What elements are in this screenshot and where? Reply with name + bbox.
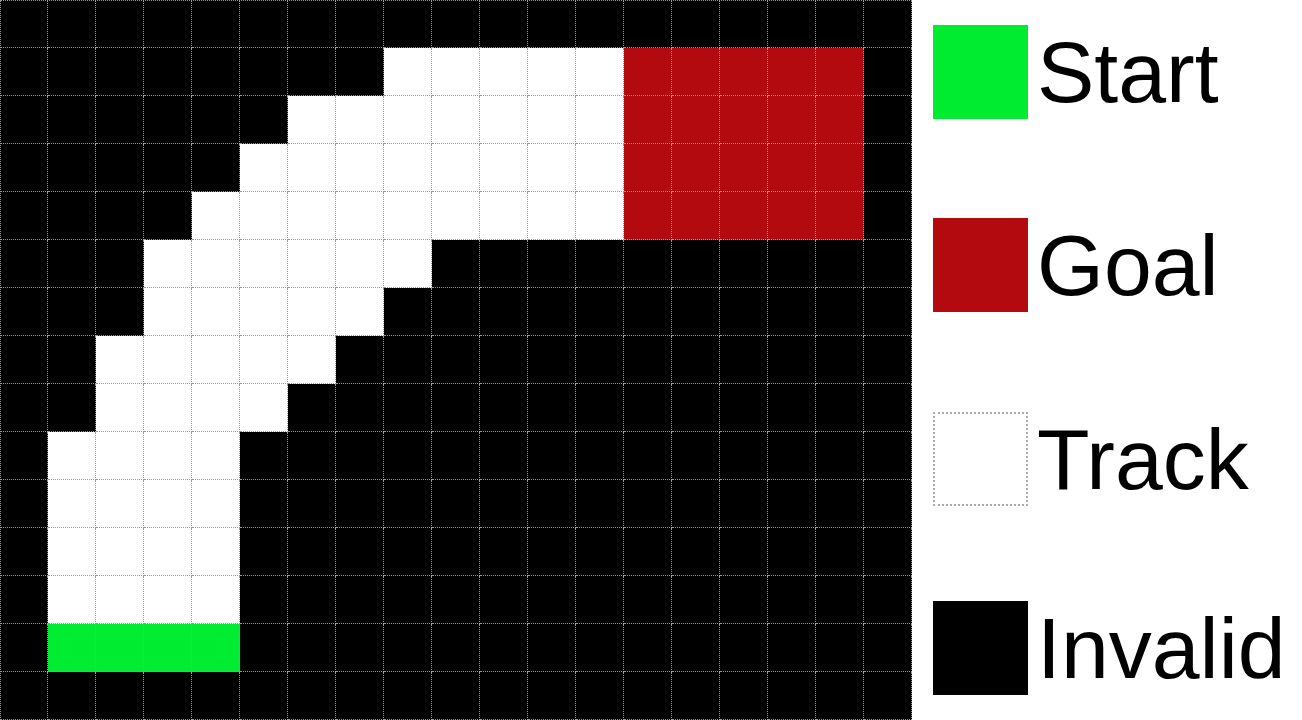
grid-cell-invalid: [192, 96, 240, 144]
grid-cell-invalid: [768, 432, 816, 480]
grid-cell-invalid: [624, 336, 672, 384]
grid-cell-track: [336, 96, 384, 144]
grid-cell-track: [384, 240, 432, 288]
grid-cell-goal: [720, 48, 768, 96]
grid-cell-track: [240, 288, 288, 336]
grid-cell-invalid: [864, 480, 912, 528]
grid-cell-invalid: [720, 336, 768, 384]
grid-cell-invalid: [336, 432, 384, 480]
grid-cell-track: [480, 48, 528, 96]
grid-cell-invalid: [576, 336, 624, 384]
grid-cell-invalid: [528, 432, 576, 480]
grid-cell-invalid: [0, 96, 48, 144]
grid-cell-invalid: [768, 0, 816, 48]
grid-cell-track: [144, 384, 192, 432]
grid-cell-invalid: [576, 624, 624, 672]
grid-cell-invalid: [240, 0, 288, 48]
grid-cell-invalid: [0, 240, 48, 288]
grid-cell-invalid: [0, 576, 48, 624]
grid-cell-invalid: [624, 576, 672, 624]
grid-cell-invalid: [624, 480, 672, 528]
grid-cell-invalid: [672, 288, 720, 336]
grid-cell-track: [192, 240, 240, 288]
grid-cell-track: [288, 336, 336, 384]
grid-cell-track: [96, 528, 144, 576]
grid-cell-invalid: [432, 576, 480, 624]
grid-cell-invalid: [864, 624, 912, 672]
grid-cell-track: [576, 144, 624, 192]
grid-cell-invalid: [384, 672, 432, 720]
grid-cell-invalid: [384, 384, 432, 432]
grid-cell-invalid: [336, 0, 384, 48]
grid-cell-track: [432, 144, 480, 192]
grid-cell-track: [432, 192, 480, 240]
grid-cell-invalid: [96, 240, 144, 288]
grid-cell-invalid: [768, 624, 816, 672]
grid-cell-invalid: [528, 528, 576, 576]
grid-cell-track: [336, 144, 384, 192]
grid-cell-invalid: [384, 336, 432, 384]
grid-cell-track: [576, 192, 624, 240]
grid-cell-invalid: [768, 288, 816, 336]
grid-cell-invalid: [576, 288, 624, 336]
grid-cell-invalid: [624, 672, 672, 720]
grid-cell-invalid: [576, 0, 624, 48]
grid-cell-invalid: [144, 192, 192, 240]
grid-cell-invalid: [432, 240, 480, 288]
grid-cell-invalid: [96, 288, 144, 336]
grid-cell-track: [192, 432, 240, 480]
grid-cell-invalid: [816, 0, 864, 48]
grid-cell-invalid: [864, 288, 912, 336]
grid-cell-invalid: [720, 288, 768, 336]
grid-cell-goal: [768, 192, 816, 240]
racetrack-grid: [0, 0, 912, 720]
grid-cell-invalid: [240, 528, 288, 576]
grid-cell-invalid: [672, 480, 720, 528]
grid-cell-invalid: [288, 624, 336, 672]
grid-cell-invalid: [144, 144, 192, 192]
grid-cell-invalid: [624, 0, 672, 48]
grid-cell-invalid: [864, 192, 912, 240]
grid-cell-invalid: [48, 0, 96, 48]
grid-cell-invalid: [672, 528, 720, 576]
grid-cell-track: [144, 528, 192, 576]
grid-cell-invalid: [768, 576, 816, 624]
grid-cell-invalid: [288, 384, 336, 432]
grid-cell-track: [336, 240, 384, 288]
grid-cell-track: [336, 288, 384, 336]
grid-cell-invalid: [768, 336, 816, 384]
grid-cell-invalid: [384, 528, 432, 576]
grid-cell-invalid: [480, 336, 528, 384]
grid-cell-track: [96, 384, 144, 432]
grid-cell-invalid: [0, 672, 48, 720]
grid-cell-invalid: [336, 576, 384, 624]
grid-cell-track: [432, 96, 480, 144]
grid-cell-goal: [768, 96, 816, 144]
grid-cell-invalid: [816, 432, 864, 480]
grid-cell-invalid: [240, 672, 288, 720]
grid-cell-invalid: [336, 624, 384, 672]
grid-cell-invalid: [720, 0, 768, 48]
grid-cell-invalid: [576, 384, 624, 432]
grid-cell-invalid: [384, 576, 432, 624]
grid-cell-track: [288, 240, 336, 288]
grid-cell-invalid: [0, 288, 48, 336]
grid-cell-track: [384, 96, 432, 144]
grid-cell-invalid: [384, 288, 432, 336]
grid-cell-track: [96, 432, 144, 480]
grid-cell-invalid: [864, 48, 912, 96]
grid-cell-invalid: [816, 528, 864, 576]
grid-cell-invalid: [0, 384, 48, 432]
grid-cell-goal: [624, 96, 672, 144]
grid-cell-invalid: [96, 96, 144, 144]
grid-cell-invalid: [672, 576, 720, 624]
grid-cell-invalid: [48, 336, 96, 384]
grid-cell-invalid: [288, 0, 336, 48]
grid-cell-track: [48, 432, 96, 480]
grid-cell-goal: [768, 144, 816, 192]
grid-cell-track: [528, 144, 576, 192]
grid-cell-track: [96, 336, 144, 384]
grid-cell-invalid: [144, 0, 192, 48]
grid-cell-invalid: [720, 528, 768, 576]
grid-cell-invalid: [816, 336, 864, 384]
grid-cell-track: [288, 288, 336, 336]
grid-cell-track: [288, 96, 336, 144]
grid-cell-invalid: [672, 0, 720, 48]
grid-cell-invalid: [864, 576, 912, 624]
grid-cell-invalid: [720, 672, 768, 720]
grid-cell-invalid: [480, 624, 528, 672]
grid-cell-goal: [624, 48, 672, 96]
grid-cell-invalid: [816, 672, 864, 720]
grid-cell-invalid: [288, 48, 336, 96]
grid-cell-invalid: [480, 672, 528, 720]
grid-cell-invalid: [816, 240, 864, 288]
grid-cell-invalid: [768, 384, 816, 432]
grid-cell-invalid: [432, 384, 480, 432]
grid-cell-invalid: [0, 624, 48, 672]
grid-cell-invalid: [240, 624, 288, 672]
grid-cell-invalid: [336, 672, 384, 720]
grid-cell-invalid: [384, 0, 432, 48]
grid-cell-invalid: [624, 432, 672, 480]
grid-cell-invalid: [0, 192, 48, 240]
legend-item-invalid: Invalid: [933, 601, 1286, 695]
grid-cell-goal: [672, 48, 720, 96]
grid-cell-invalid: [432, 432, 480, 480]
grid-cell-invalid: [240, 96, 288, 144]
grid-cell-invalid: [720, 480, 768, 528]
grid-cell-track: [576, 48, 624, 96]
grid-cell-track: [192, 480, 240, 528]
grid-cell-invalid: [96, 144, 144, 192]
grid-cell-invalid: [48, 144, 96, 192]
track-swatch: [933, 412, 1028, 506]
grid-cell-invalid: [288, 432, 336, 480]
grid-cell-invalid: [48, 288, 96, 336]
grid-cell-invalid: [720, 240, 768, 288]
grid-cell-track: [144, 480, 192, 528]
grid-cell-invalid: [528, 672, 576, 720]
grid-cell-invalid: [720, 384, 768, 432]
grid-cell-invalid: [0, 144, 48, 192]
grid-cell-start: [48, 624, 96, 672]
grid-cell-invalid: [432, 0, 480, 48]
grid-cell-track: [288, 144, 336, 192]
grid-cell-invalid: [480, 576, 528, 624]
grid-cell-invalid: [288, 528, 336, 576]
grid-cell-invalid: [192, 144, 240, 192]
grid-cell-invalid: [816, 576, 864, 624]
grid-cell-invalid: [192, 0, 240, 48]
grid-cell-track: [144, 240, 192, 288]
grid-cell-invalid: [864, 144, 912, 192]
grid-cell-invalid: [336, 336, 384, 384]
grid-cell-invalid: [864, 384, 912, 432]
grid-cell-invalid: [672, 336, 720, 384]
grid-cell-invalid: [768, 672, 816, 720]
grid-cell-track: [480, 96, 528, 144]
grid-cell-start: [144, 624, 192, 672]
grid-cell-invalid: [528, 384, 576, 432]
grid-cell-invalid: [480, 528, 528, 576]
grid-cell-invalid: [528, 0, 576, 48]
grid-cell-track: [432, 48, 480, 96]
grid-cell-invalid: [0, 0, 48, 48]
grid-cell-track: [288, 192, 336, 240]
grid-cell-invalid: [48, 384, 96, 432]
grid-cell-invalid: [288, 576, 336, 624]
legend: Start Goal Track Invalid: [912, 0, 1302, 720]
grid-cell-invalid: [0, 48, 48, 96]
grid-cell-track: [144, 576, 192, 624]
grid-cell-invalid: [864, 96, 912, 144]
grid-cell-invalid: [864, 672, 912, 720]
grid-cell-invalid: [48, 48, 96, 96]
grid-cell-invalid: [384, 624, 432, 672]
grid-cell-goal: [624, 144, 672, 192]
grid-cell-track: [96, 576, 144, 624]
grid-cell-track: [576, 96, 624, 144]
grid-cell-invalid: [864, 336, 912, 384]
grid-cell-track: [336, 192, 384, 240]
grid-cell-invalid: [816, 624, 864, 672]
grid-cell-track: [384, 192, 432, 240]
grid-cell-invalid: [528, 624, 576, 672]
grid-cell-invalid: [768, 528, 816, 576]
grid-cell-invalid: [432, 336, 480, 384]
grid-cell-goal: [672, 192, 720, 240]
grid-cell-invalid: [576, 576, 624, 624]
grid-cell-track: [144, 336, 192, 384]
grid-cell-invalid: [672, 432, 720, 480]
grid-cell-track: [240, 192, 288, 240]
grid-cell-track: [192, 576, 240, 624]
grid-cell-invalid: [240, 432, 288, 480]
grid-cell-track: [240, 240, 288, 288]
grid-cell-invalid: [144, 672, 192, 720]
grid-cell-track: [240, 384, 288, 432]
grid-cell-invalid: [0, 336, 48, 384]
grid-cell-invalid: [624, 384, 672, 432]
grid-cell-invalid: [864, 432, 912, 480]
grid-cell-invalid: [240, 48, 288, 96]
grid-cell-invalid: [816, 384, 864, 432]
grid-cell-invalid: [528, 240, 576, 288]
grid-cell-invalid: [480, 240, 528, 288]
start-swatch: [933, 25, 1028, 119]
grid-cell-invalid: [480, 0, 528, 48]
grid-cell-invalid: [432, 480, 480, 528]
grid-cell-goal: [816, 192, 864, 240]
grid-cell-invalid: [240, 480, 288, 528]
grid-cell-invalid: [816, 480, 864, 528]
grid-cell-invalid: [0, 528, 48, 576]
grid-cell-track: [192, 384, 240, 432]
grid-cell-track: [192, 528, 240, 576]
grid-cell-invalid: [528, 288, 576, 336]
grid-cell-invalid: [528, 480, 576, 528]
grid-cell-invalid: [48, 96, 96, 144]
grid-cell-invalid: [576, 240, 624, 288]
grid-cell-invalid: [816, 288, 864, 336]
legend-label-start: Start: [1037, 25, 1219, 119]
grid-cell-track: [384, 48, 432, 96]
grid-cell-track: [240, 336, 288, 384]
grid-cell-invalid: [480, 432, 528, 480]
grid-cell-track: [192, 288, 240, 336]
grid-cell-invalid: [144, 48, 192, 96]
grid-cell-track: [528, 48, 576, 96]
grid-cell-invalid: [672, 672, 720, 720]
grid-cell-invalid: [96, 672, 144, 720]
grid-cell-invalid: [96, 192, 144, 240]
grid-cell-track: [48, 528, 96, 576]
grid-cell-invalid: [144, 96, 192, 144]
grid-cell-track: [144, 432, 192, 480]
grid-cell-track: [96, 480, 144, 528]
grid-cell-invalid: [720, 432, 768, 480]
legend-item-track: Track: [933, 412, 1249, 506]
grid-cell-invalid: [96, 48, 144, 96]
grid-cell-track: [528, 96, 576, 144]
grid-cell-invalid: [48, 672, 96, 720]
invalid-swatch: [933, 601, 1028, 695]
grid-cell-invalid: [432, 528, 480, 576]
grid-cell-invalid: [576, 432, 624, 480]
legend-item-goal: Goal: [933, 218, 1219, 312]
grid-cell-track: [528, 192, 576, 240]
grid-cell-invalid: [432, 288, 480, 336]
grid-cell-invalid: [336, 480, 384, 528]
grid-cell-track: [480, 144, 528, 192]
grid-cell-invalid: [240, 576, 288, 624]
grid-cell-invalid: [0, 432, 48, 480]
grid-cell-track: [192, 192, 240, 240]
grid-cell-goal: [816, 48, 864, 96]
grid-cell-invalid: [48, 192, 96, 240]
grid-cell-invalid: [624, 528, 672, 576]
grid-cell-invalid: [432, 624, 480, 672]
grid-cell-invalid: [576, 672, 624, 720]
grid-cell-invalid: [192, 48, 240, 96]
grid-cell-invalid: [336, 528, 384, 576]
grid-cell-invalid: [288, 480, 336, 528]
grid-cell-invalid: [720, 576, 768, 624]
grid-cell-invalid: [480, 384, 528, 432]
grid-cell-invalid: [864, 240, 912, 288]
grid-cell-track: [48, 480, 96, 528]
grid-cell-invalid: [336, 48, 384, 96]
grid-cell-track: [480, 192, 528, 240]
legend-item-start: Start: [933, 25, 1219, 119]
grid-cell-invalid: [480, 288, 528, 336]
grid-cell-goal: [816, 144, 864, 192]
grid-cell-track: [48, 576, 96, 624]
goal-swatch: [933, 218, 1028, 312]
grid-cell-start: [96, 624, 144, 672]
grid-cell-goal: [672, 144, 720, 192]
grid-cell-invalid: [384, 432, 432, 480]
grid-cell-invalid: [528, 336, 576, 384]
legend-label-track: Track: [1037, 412, 1249, 506]
grid-cell-invalid: [192, 672, 240, 720]
grid-cell-invalid: [624, 288, 672, 336]
grid-cell-invalid: [480, 480, 528, 528]
grid-cell-invalid: [768, 480, 816, 528]
grid-cell-goal: [624, 192, 672, 240]
grid-cell-invalid: [672, 240, 720, 288]
grid-cell-invalid: [576, 528, 624, 576]
grid-cell-goal: [768, 48, 816, 96]
grid-cell-start: [192, 624, 240, 672]
grid-cell-invalid: [672, 384, 720, 432]
grid-cell-invalid: [864, 528, 912, 576]
grid-cell-invalid: [720, 624, 768, 672]
grid-cell-goal: [720, 144, 768, 192]
grid-cell-goal: [720, 192, 768, 240]
grid-cell-invalid: [672, 624, 720, 672]
grid-cell-invalid: [288, 672, 336, 720]
grid-cell-invalid: [624, 240, 672, 288]
grid-cell-invalid: [48, 240, 96, 288]
grid-cell-invalid: [864, 0, 912, 48]
grid-cell-goal: [816, 96, 864, 144]
grid-cell-invalid: [0, 480, 48, 528]
grid-cell-goal: [720, 96, 768, 144]
grid-cell-invalid: [384, 480, 432, 528]
grid-cell-invalid: [528, 576, 576, 624]
grid-cell-track: [192, 336, 240, 384]
grid-cell-track: [384, 144, 432, 192]
grid-cell-invalid: [336, 384, 384, 432]
grid-cell-track: [144, 288, 192, 336]
grid-cell-invalid: [768, 240, 816, 288]
grid-cell-track: [240, 144, 288, 192]
grid-cell-invalid: [624, 624, 672, 672]
grid-cell-invalid: [576, 480, 624, 528]
legend-label-invalid: Invalid: [1037, 601, 1286, 695]
legend-label-goal: Goal: [1037, 218, 1219, 312]
racetrack-figure: Start Goal Track Invalid: [0, 0, 1302, 720]
grid-cell-invalid: [432, 672, 480, 720]
grid-cell-goal: [672, 96, 720, 144]
grid-cell-invalid: [96, 0, 144, 48]
